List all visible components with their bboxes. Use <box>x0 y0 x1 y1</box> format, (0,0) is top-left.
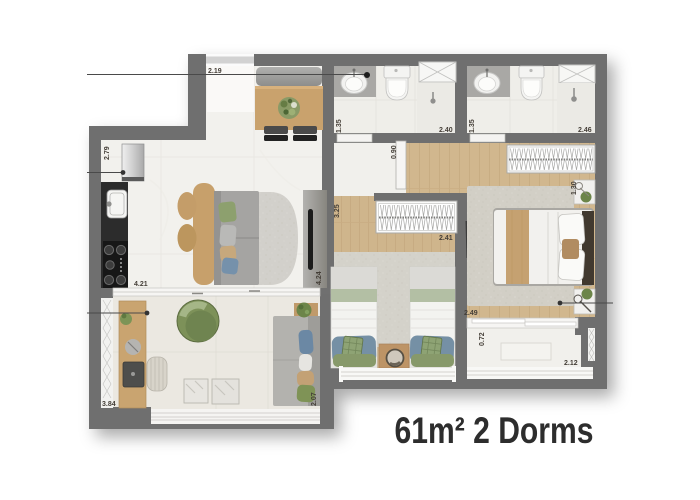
svg-text:2.07: 2.07 <box>311 392 318 406</box>
svg-text:3.25: 3.25 <box>334 204 341 218</box>
svg-text:0.90: 0.90 <box>391 145 398 159</box>
svg-text:2.12: 2.12 <box>564 360 578 367</box>
svg-text:2.40: 2.40 <box>439 127 453 134</box>
svg-text:2.46: 2.46 <box>578 127 592 134</box>
svg-text:2.41: 2.41 <box>439 235 453 242</box>
svg-text:2.19: 2.19 <box>208 68 222 75</box>
svg-text:2.49: 2.49 <box>464 310 478 317</box>
svg-text:3.84: 3.84 <box>102 401 116 408</box>
svg-text:1.30: 1.30 <box>571 181 578 195</box>
svg-text:0.72: 0.72 <box>479 332 486 346</box>
svg-text:2.79: 2.79 <box>104 146 111 160</box>
svg-text:1.35: 1.35 <box>336 119 343 133</box>
svg-text:1.35: 1.35 <box>469 119 476 133</box>
svg-text:4.24: 4.24 <box>316 271 323 285</box>
svg-text:61m² 2 Dorms: 61m² 2 Dorms <box>395 410 594 451</box>
svg-text:4.21: 4.21 <box>134 281 148 288</box>
